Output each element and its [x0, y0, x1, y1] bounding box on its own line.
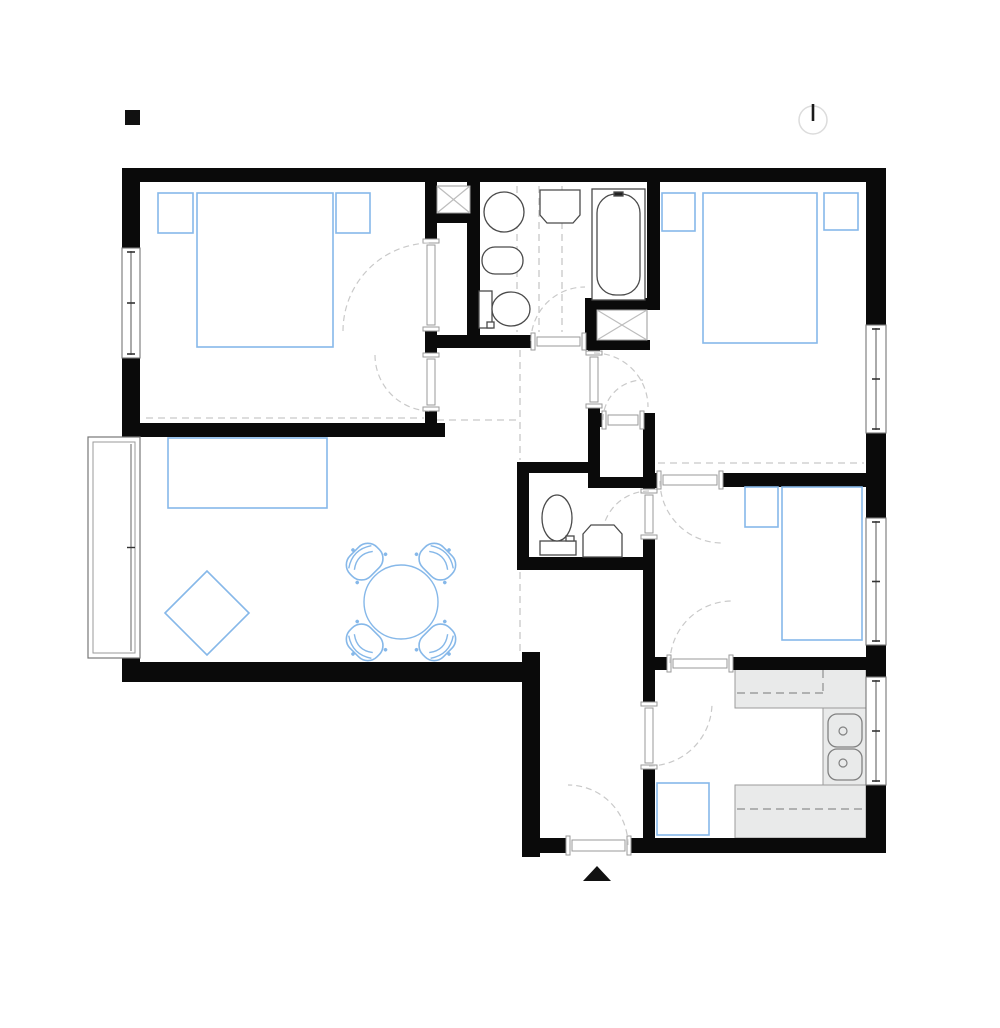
- wall-bottom-left: [522, 838, 567, 853]
- door-bedroom3-north-jamb: [719, 471, 723, 489]
- door-bedroom1-closet-jamb: [423, 327, 439, 331]
- door-bedroom2-lobby-leaf: [590, 357, 598, 402]
- door-wc-jamb: [641, 535, 657, 539]
- door-bedroom1-leaf: [427, 359, 435, 405]
- door-bedroom3-north-leaf: [663, 475, 717, 485]
- wall-exterior-right-d: [866, 785, 886, 853]
- bedroom2-bed: [703, 193, 817, 343]
- door-entrance-jamb: [627, 836, 631, 855]
- kitchen-sink: [828, 749, 862, 780]
- dining-table: [364, 565, 438, 639]
- wc-toilet: [566, 536, 574, 541]
- wall-closet-east: [643, 413, 655, 483]
- bathroom-toilet: [492, 292, 530, 326]
- wall-bedroom3-south-stub: [655, 657, 668, 670]
- wall-bedroom1-east-c: [425, 410, 437, 437]
- bedroom1-nightstand-left: [158, 193, 193, 233]
- bathroom-washbasin: [484, 192, 524, 232]
- door-bathroom-leaf: [537, 337, 580, 346]
- wall-bedroom1-east-a: [425, 182, 437, 240]
- wall-closet-north-stub-a: [588, 413, 603, 427]
- bathtub: [614, 192, 623, 196]
- wc-toilet: [540, 541, 576, 555]
- wall-exterior-right-c: [866, 645, 886, 677]
- door-storage-closet-leaf: [608, 415, 638, 425]
- wall-living-south: [122, 662, 540, 682]
- wc-toilet: [542, 495, 572, 541]
- door-bedroom1-closet-jamb: [423, 239, 439, 243]
- wall-bathroom-east: [647, 182, 660, 310]
- door-bedroom3-south-jamb: [729, 655, 733, 672]
- door-bathroom-jamb: [582, 333, 586, 350]
- floor-plan-svg: [0, 0, 1000, 1028]
- door-kitchen-leaf: [645, 708, 653, 763]
- wall-shaft1-south: [425, 213, 470, 223]
- wall-wc-north: [517, 462, 588, 473]
- wall-bathroom-south: [425, 335, 532, 348]
- bedroom1-bed: [197, 193, 333, 347]
- wall-bedroom3-south: [732, 657, 866, 670]
- kitchen-counter-top: [735, 668, 866, 708]
- washing-machine: [540, 190, 580, 223]
- wall-bedroom1-south: [122, 423, 445, 437]
- kitchen-sink: [828, 714, 862, 747]
- bedroom3-nightstand: [745, 487, 778, 527]
- wall-exterior-left-upper: [122, 182, 140, 248]
- bathroom-bidet: [482, 247, 523, 274]
- bathtub: [597, 194, 640, 295]
- bedroom3-bed: [782, 487, 862, 640]
- kitchen-table: [657, 783, 709, 835]
- door-bedroom2-lobby-jamb: [586, 404, 602, 408]
- kitchen-counter-bottom: [735, 785, 866, 838]
- door-entrance-jamb: [566, 836, 570, 855]
- door-bedroom1-closet-leaf: [427, 245, 435, 325]
- wall-hall-west: [522, 652, 540, 857]
- door-wc-leaf: [645, 495, 653, 533]
- wall-bedroom3-north: [722, 473, 866, 487]
- door-bedroom1-jamb: [423, 353, 439, 357]
- door-storage-closet-jamb: [640, 411, 644, 429]
- bedroom1-nightstand-right: [336, 193, 370, 233]
- floor-plan-canvas: [0, 0, 1000, 1028]
- door-kitchen-jamb: [641, 702, 657, 706]
- door-bedroom3-south-leaf: [673, 659, 727, 668]
- wall-hall-east: [643, 538, 655, 703]
- wall-kitchen-west-lower: [643, 768, 655, 853]
- bathroom-toilet: [487, 322, 494, 328]
- wall-exterior-left-mid: [122, 358, 140, 423]
- wall-exterior-top: [122, 168, 886, 182]
- wall-exterior-right-a: [866, 182, 886, 325]
- door-entrance-leaf: [572, 840, 625, 851]
- wc-washbasin: [583, 525, 622, 557]
- wall-wc-west: [517, 462, 529, 560]
- wall-bedroom3-north-stub: [643, 473, 658, 487]
- wall-wc-south: [517, 557, 655, 570]
- bedroom2-nightstand-right: [824, 193, 858, 230]
- bedroom2-nightstand-left: [662, 193, 695, 231]
- wall-bottom-right: [630, 838, 886, 853]
- wall-exterior-right-b: [866, 433, 886, 518]
- scale-marker-square: [125, 110, 140, 125]
- sofa: [168, 438, 327, 508]
